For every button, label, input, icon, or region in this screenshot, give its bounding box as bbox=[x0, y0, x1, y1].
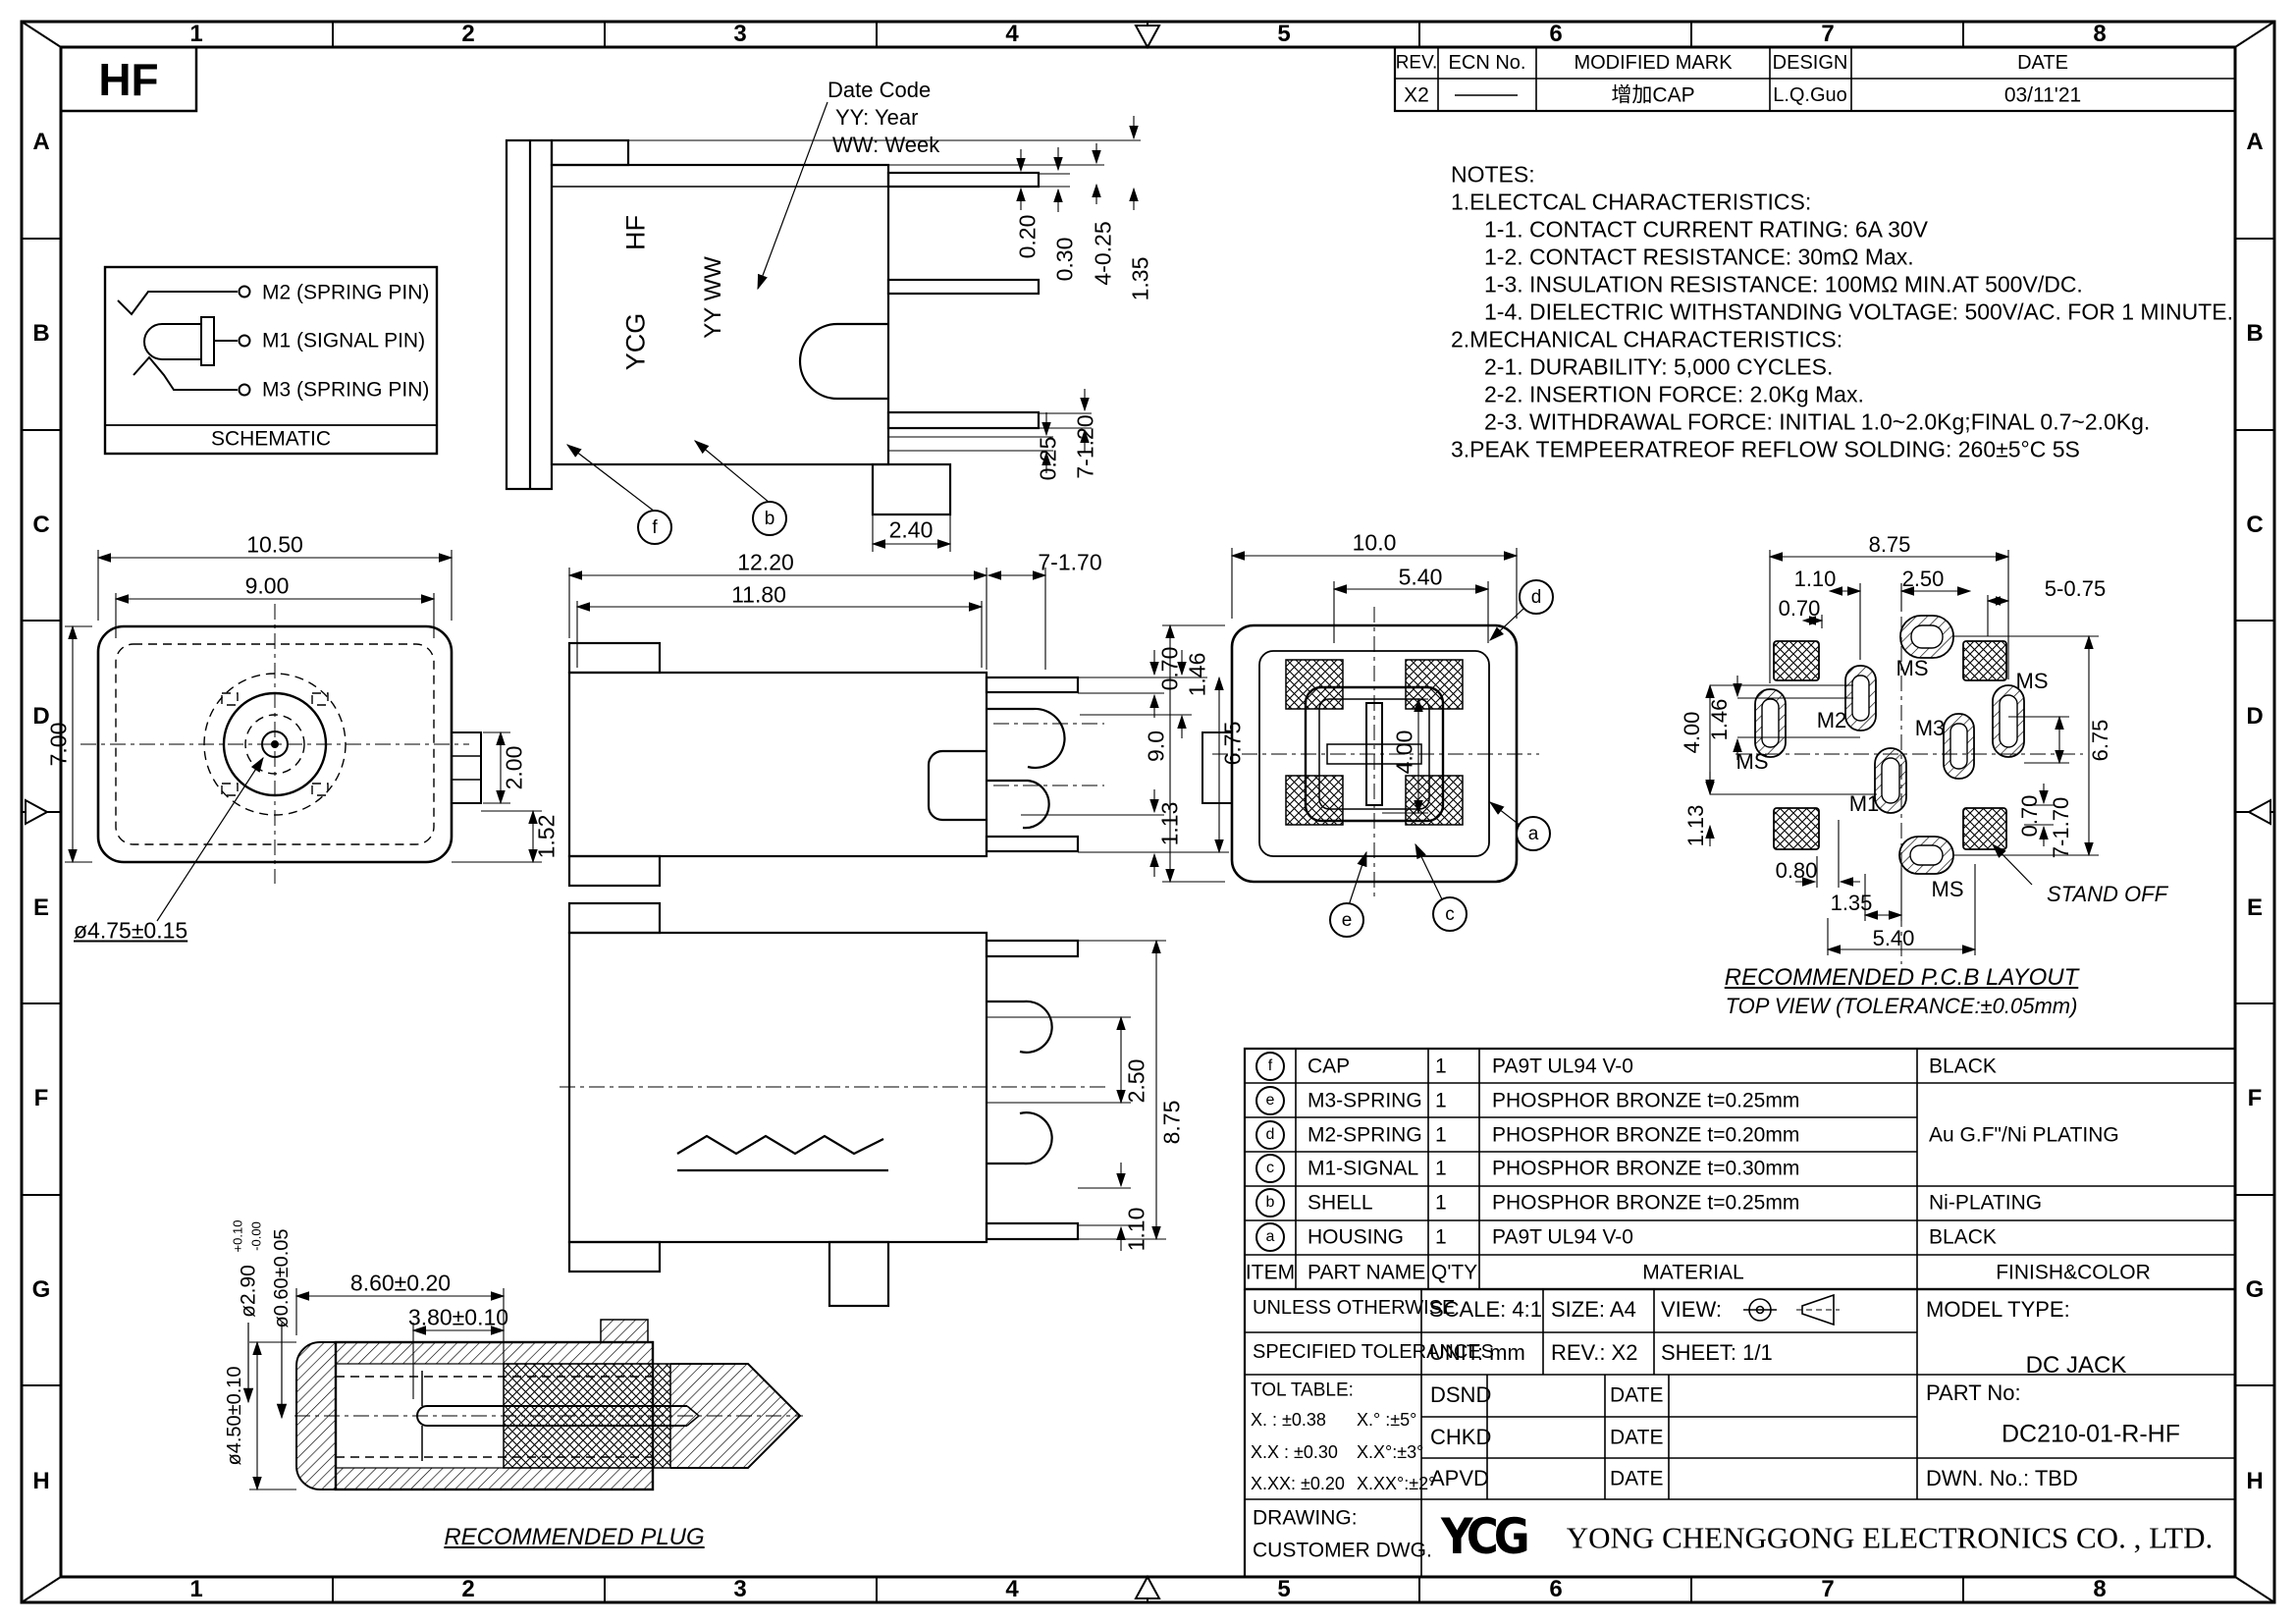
title_block-rev: REV.: X2 bbox=[1551, 1342, 1637, 1364]
bom-q-c: 1 bbox=[1435, 1159, 1447, 1179]
view_right-bal-e: e bbox=[1329, 902, 1364, 938]
grid_right-rg: G bbox=[2246, 1278, 2265, 1302]
pcb-ms-left: MS bbox=[1736, 751, 1769, 773]
view_front-d200: 2.00 bbox=[504, 746, 526, 790]
grid_bottom-c6: 6 bbox=[1549, 1578, 1562, 1601]
view_right-bal-a: a bbox=[1516, 816, 1551, 851]
pcb-d135: 1.35 bbox=[1831, 893, 1873, 914]
view_top-d240: 2.40 bbox=[889, 519, 934, 542]
notes-item-7: 2-1. DURABILITY: 5,000 CYCLES. bbox=[1484, 356, 1833, 379]
schematic-m1: M1 (SIGNAL PIN) bbox=[262, 331, 425, 352]
grid_bottom-c7: 7 bbox=[1821, 1578, 1834, 1601]
company-logo: YCG bbox=[1441, 1512, 1525, 1561]
schematic-caption: SCHEMATIC bbox=[211, 429, 331, 450]
notes-item-10: 3.PEAK TEMPEERATREOF REFLOW SOLDING: 260… bbox=[1451, 439, 2080, 461]
title_block-sheet: SHEET: 1/1 bbox=[1661, 1342, 1773, 1364]
pcb-d250: 2.50 bbox=[1902, 568, 1945, 590]
rev_table-v-design: L.Q.Guo bbox=[1773, 85, 1847, 105]
view_top-d4-025: 4-0.25 bbox=[1093, 221, 1115, 285]
notes-item-6: 2.MECHANICAL CHARACTERISTICS: bbox=[1451, 329, 1842, 352]
bom-fin-a: BLACK bbox=[1929, 1227, 1997, 1248]
title_block-size: SIZE: A4 bbox=[1551, 1299, 1636, 1321]
pcb-d675: 6.75 bbox=[2090, 720, 2111, 762]
pcb-d070r: 0.70 bbox=[2019, 795, 2041, 838]
notes-item-1: 1.ELECTCAL CHARACTERISTICS: bbox=[1451, 191, 1811, 214]
title_block-partno-label: PART No: bbox=[1926, 1382, 2021, 1404]
bom-mat-b: PHOSPHOR BRONZE t=0.25mm bbox=[1492, 1193, 1799, 1214]
bom-pn-a: HOUSING bbox=[1308, 1227, 1404, 1248]
view_right-d540: 5.40 bbox=[1399, 567, 1443, 589]
view_top-d030: 0.30 bbox=[1054, 238, 1077, 282]
grid_top-c8: 8 bbox=[2093, 23, 2106, 46]
grid_bottom-c2: 2 bbox=[461, 1578, 474, 1601]
bom-fin-edc: Au G.F"/Ni PLATING bbox=[1929, 1125, 2119, 1146]
pcb-ms-bot: MS bbox=[1932, 879, 1964, 900]
grid_bottom-c5: 5 bbox=[1277, 1578, 1290, 1601]
grid_left-ra: A bbox=[32, 131, 49, 154]
bom-pn-c: M1-SIGNAL bbox=[1308, 1159, 1418, 1179]
title_block-model-value: DC JACK bbox=[2026, 1354, 2127, 1378]
bom-bal-c: c bbox=[1255, 1154, 1285, 1183]
title_block-drawing1: DRAWING: bbox=[1253, 1508, 1358, 1529]
date_code-item-2: WW: Week bbox=[832, 135, 939, 156]
grid_top-c1: 1 bbox=[189, 23, 202, 46]
drawing-text-layer: 1234567812345678ABCDEFGHABCDEFGHHFREV.EC… bbox=[0, 0, 2296, 1624]
engineering-drawing-sheet: 1234567812345678ABCDEFGHABCDEFGHHFREV.EC… bbox=[0, 0, 2296, 1624]
view_side-d070: 0.70 bbox=[1159, 647, 1182, 691]
pcb-d875: 8.75 bbox=[1869, 534, 1911, 556]
view_top-d7-120: 7-1.20 bbox=[1075, 414, 1097, 478]
title_block-tt3a: X.XX: ±0.20 bbox=[1251, 1475, 1345, 1492]
title_block-tt2b: X.X°:±3° bbox=[1357, 1443, 1423, 1461]
bom-pn-b: SHELL bbox=[1308, 1193, 1373, 1214]
view_front-d475: ø4.75±0.15 bbox=[74, 920, 187, 943]
view_right-bal-c: c bbox=[1432, 896, 1468, 932]
bom-h-qty: Q'TY bbox=[1431, 1263, 1477, 1283]
bom-mat-d: PHOSPHOR BRONZE t=0.20mm bbox=[1492, 1125, 1799, 1146]
company-name: YONG CHENGGONG ELECTRONICS CO. , LTD. bbox=[1567, 1523, 2213, 1553]
bom-h-item: ITEM bbox=[1246, 1263, 1295, 1283]
view_side2-d250: 2.50 bbox=[1126, 1059, 1148, 1104]
bom-mat-c: PHOSPHOR BRONZE t=0.30mm bbox=[1492, 1159, 1799, 1179]
pcb-d7-170: 7-1.70 bbox=[2051, 797, 2072, 858]
title_block-view: VIEW: bbox=[1661, 1299, 1722, 1321]
view_front-d1050: 10.50 bbox=[246, 534, 303, 557]
view_top-d020: 0.20 bbox=[1017, 215, 1040, 259]
view_top-d135: 1.35 bbox=[1130, 257, 1152, 301]
view_side-d113: 1.13 bbox=[1159, 802, 1182, 846]
rev_table-v-rev: X2 bbox=[1404, 85, 1429, 106]
title_block-model-label: MODEL TYPE: bbox=[1926, 1299, 2070, 1321]
title_block-drawing2: CUSTOMER DWG. bbox=[1253, 1541, 1432, 1561]
bom-mat-f: PA9T UL94 V-0 bbox=[1492, 1056, 1633, 1077]
title_block-chkd: CHKD bbox=[1430, 1427, 1491, 1448]
grid_left-rc: C bbox=[32, 514, 49, 537]
bom-h-part: PART NAME bbox=[1308, 1263, 1425, 1283]
view_top-mark-ycg: YCG bbox=[623, 313, 650, 371]
pcb-ms-top: MS bbox=[1896, 658, 1929, 679]
grid_right-rd: D bbox=[2246, 705, 2263, 729]
grid_top-c4: 4 bbox=[1005, 23, 1018, 46]
plug-d290t1: +0.10 bbox=[232, 1220, 244, 1253]
view_side-d675: 6.75 bbox=[1222, 722, 1245, 766]
rev_table-v-mod: 增加CAP bbox=[1611, 85, 1694, 106]
rev_table-h-ecn: ECN No. bbox=[1449, 53, 1526, 73]
sheet_code-hf: HF bbox=[98, 57, 158, 102]
view_top-bal-b: b bbox=[752, 501, 787, 536]
schematic-m2: M2 (SPRING PIN) bbox=[262, 283, 429, 303]
grid_left-rh: H bbox=[32, 1470, 49, 1493]
notes-item-8: 2-2. INSERTION FORCE: 2.0Kg Max. bbox=[1484, 384, 1864, 406]
plug-d290t2: -0.00 bbox=[250, 1221, 263, 1251]
view_right-d100: 10.0 bbox=[1353, 532, 1397, 555]
title_block-tt1b: X.° :±5° bbox=[1357, 1411, 1416, 1429]
grid_bottom-c8: 8 bbox=[2093, 1578, 2106, 1601]
bom-q-a: 1 bbox=[1435, 1227, 1447, 1248]
rev_table-v-date: 03/11'21 bbox=[2004, 85, 2081, 106]
view_side-d1220: 12.20 bbox=[737, 552, 794, 574]
schematic-m3: M3 (SPRING PIN) bbox=[262, 380, 429, 401]
bom-bal-f: f bbox=[1255, 1052, 1285, 1081]
grid_right-ra: A bbox=[2246, 131, 2263, 154]
bom-fin-f: BLACK bbox=[1929, 1056, 1997, 1077]
grid_right-rb: B bbox=[2246, 322, 2263, 346]
grid_top-c3: 3 bbox=[733, 23, 746, 46]
bom-fin-b: Ni-PLATING bbox=[1929, 1193, 2042, 1214]
bom-q-e: 1 bbox=[1435, 1091, 1447, 1111]
rev_table-h-rev: REV. bbox=[1396, 54, 1438, 73]
grid_left-re: E bbox=[33, 896, 49, 920]
title_block-scale: SCALE: 4:1 bbox=[1429, 1299, 1542, 1321]
view_top-mark-hf: HF bbox=[623, 215, 650, 250]
date_code-item-1: YY: Year bbox=[835, 107, 918, 129]
bom-q-d: 1 bbox=[1435, 1125, 1447, 1146]
view_top-mark-yyww: YY WW bbox=[702, 256, 725, 339]
pcb-d070l: 0.70 bbox=[1779, 598, 1821, 620]
grid_top-c5: 5 bbox=[1277, 23, 1290, 46]
bom-pn-e: M3-SPRING bbox=[1308, 1091, 1422, 1111]
title_block-partno-value: DC210-01-R-HF bbox=[2002, 1423, 2180, 1447]
title_block-date2: DATE bbox=[1610, 1428, 1663, 1448]
title_block-tt3b: X.XX°:±2° bbox=[1357, 1475, 1435, 1492]
title_block-date1: DATE bbox=[1610, 1385, 1663, 1406]
bom-q-b: 1 bbox=[1435, 1193, 1447, 1214]
plug-caption: RECOMMENDED PLUG bbox=[444, 1526, 704, 1549]
bom-pn-f: CAP bbox=[1308, 1056, 1350, 1077]
grid_top-c6: 6 bbox=[1549, 23, 1562, 46]
title_block-dwnno: DWN. No.: TBD bbox=[1926, 1468, 2078, 1489]
view_side-d146: 1.46 bbox=[1187, 653, 1209, 697]
plug-d860: 8.60±0.20 bbox=[350, 1272, 451, 1295]
plug-d380: 3.80±0.10 bbox=[408, 1307, 508, 1329]
grid_top-c7: 7 bbox=[1821, 23, 1834, 46]
title_block-tt1a: X. : ±0.38 bbox=[1251, 1411, 1326, 1429]
bom-bal-b: b bbox=[1255, 1188, 1285, 1218]
title_block-apvd: APVD bbox=[1430, 1468, 1489, 1489]
title_block-tt2a: X.X : ±0.30 bbox=[1251, 1443, 1338, 1461]
pcb-d113: 1.13 bbox=[1685, 805, 1707, 847]
grid_top-c2: 2 bbox=[461, 23, 474, 46]
pcb-d110: 1.10 bbox=[1794, 568, 1837, 590]
pcb-d080: 0.80 bbox=[1776, 860, 1818, 882]
title_block-tt0: TOL TABLE: bbox=[1251, 1381, 1354, 1400]
pcb-m1: M1 bbox=[1849, 793, 1880, 815]
grid_left-rf: F bbox=[34, 1087, 49, 1110]
rev_table-h-design: DESIGN bbox=[1773, 53, 1848, 73]
view_side2-d110: 1.10 bbox=[1126, 1208, 1148, 1252]
grid_bottom-c4: 4 bbox=[1005, 1578, 1018, 1601]
pcb-d5-075: 5-0.75 bbox=[2045, 578, 2106, 600]
bom-mat-e: PHOSPHOR BRONZE t=0.25mm bbox=[1492, 1091, 1799, 1111]
date_code-item-0: Date Code bbox=[828, 80, 931, 101]
view_front-d900: 9.00 bbox=[245, 575, 290, 598]
grid_right-re: E bbox=[2247, 896, 2263, 920]
bom-bal-d: d bbox=[1255, 1120, 1285, 1150]
view_front-d152: 1.52 bbox=[536, 815, 559, 859]
title_block-unit: UNIT: mm bbox=[1429, 1342, 1525, 1364]
bom-h-mat: MATERIAL bbox=[1642, 1263, 1743, 1283]
grid_left-rb: B bbox=[32, 322, 49, 346]
bom-bal-e: e bbox=[1255, 1086, 1285, 1115]
title_block-dsnd: DSND bbox=[1430, 1384, 1491, 1406]
view_right-d400: 4.00 bbox=[1394, 731, 1416, 775]
notes-item-4: 1-3. INSULATION RESISTANCE: 100MΩ MIN.AT… bbox=[1484, 274, 2083, 297]
grid_left-rg: G bbox=[32, 1278, 51, 1302]
pcb-caption1: RECOMMENDED P.C.B LAYOUT bbox=[1725, 966, 2079, 990]
plug-d450: ø4.50±0.10 bbox=[225, 1366, 244, 1465]
view_right-d90: 9.0 bbox=[1146, 731, 1168, 762]
bom-h-fin: FINISH&COLOR bbox=[1996, 1263, 2151, 1283]
bom-bal-a: a bbox=[1255, 1222, 1285, 1252]
notes-item-9: 2-3. WITHDRAWAL FORCE: INITIAL 1.0~2.0Kg… bbox=[1484, 411, 2150, 434]
bom-mat-a: PA9T UL94 V-0 bbox=[1492, 1227, 1633, 1248]
bom-q-f: 1 bbox=[1435, 1056, 1447, 1077]
pcb-d400: 4.00 bbox=[1682, 712, 1703, 754]
bom-pn-d: M2-SPRING bbox=[1308, 1125, 1422, 1146]
pcb-d146: 1.46 bbox=[1709, 699, 1731, 741]
view_right-bal-d: d bbox=[1519, 579, 1554, 615]
plug-d060: ø0.60±0.05 bbox=[272, 1228, 292, 1327]
rev_table-h-date: DATE bbox=[2017, 53, 2068, 73]
notes-item-2: 1-1. CONTACT CURRENT RATING: 6A 30V bbox=[1484, 219, 1928, 242]
pcb-ms-right: MS bbox=[2016, 671, 2049, 692]
grid_bottom-c1: 1 bbox=[189, 1578, 202, 1601]
grid_bottom-c3: 3 bbox=[733, 1578, 746, 1601]
notes-item-0: NOTES: bbox=[1451, 164, 1535, 187]
grid_right-rf: F bbox=[2248, 1087, 2263, 1110]
view_front-d700: 7.00 bbox=[48, 723, 71, 767]
view_side-d7-170: 7-1.70 bbox=[1038, 552, 1101, 574]
title_block-date3: DATE bbox=[1610, 1469, 1663, 1489]
notes-item-3: 1-2. CONTACT RESISTANCE: 30mΩ Max. bbox=[1484, 246, 1914, 269]
grid_right-rh: H bbox=[2246, 1470, 2263, 1493]
plug-d290: ø2.90 bbox=[239, 1265, 259, 1318]
grid_right-rc: C bbox=[2246, 514, 2263, 537]
view_side-d1180: 11.80 bbox=[731, 584, 786, 607]
notes-item-5: 1-4. DIELECTRIC WITHSTANDING VOLTAGE: 50… bbox=[1484, 301, 2233, 324]
pcb-standoff: STAND OFF bbox=[2047, 884, 2167, 905]
view_top-bal-f: f bbox=[637, 510, 672, 545]
pcb-m3: M3 bbox=[1915, 718, 1946, 739]
view_side2-d875: 8.75 bbox=[1161, 1101, 1184, 1145]
pcb-d540: 5.40 bbox=[1873, 928, 1915, 949]
rev_table-h-mod: MODIFIED MARK bbox=[1574, 53, 1732, 73]
view_top-d025: 0.25 bbox=[1038, 437, 1060, 481]
pcb-m2: M2 bbox=[1817, 710, 1847, 731]
pcb-caption2: TOP VIEW (TOLERANCE:±0.05mm) bbox=[1726, 996, 2078, 1017]
title_block-tol1: UNLESS OTHERWISE bbox=[1253, 1298, 1455, 1318]
